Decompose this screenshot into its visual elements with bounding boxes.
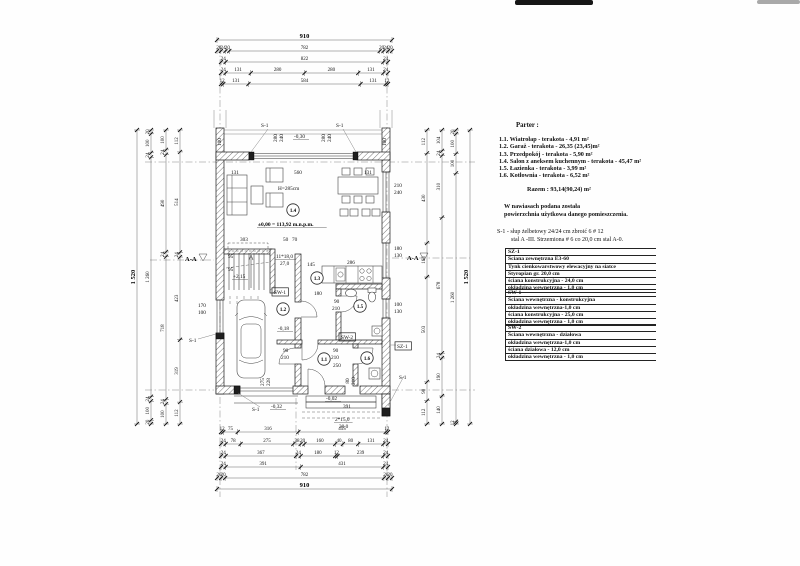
dim-label: 275 bbox=[263, 439, 271, 444]
dim-label: 24 bbox=[221, 462, 227, 467]
dim-label: 782 bbox=[301, 46, 309, 51]
s1-note-2: stal A -III. Strzemiona # 6 co 20,0 cm s… bbox=[511, 237, 623, 245]
room-list-item: 1.1. Wiatrołap - terakota - 4,91 m² bbox=[499, 136, 641, 143]
plan-label: 2*15,0 bbox=[335, 417, 350, 423]
plan-label: ±0,00 = 113,92 m.n.p.m. bbox=[258, 222, 314, 228]
wall-table-sw2: SW-2 Ściana wewnętrzna - działowa okładz… bbox=[505, 324, 656, 361]
dim-label: 131 bbox=[367, 68, 375, 73]
dim-label: 24 bbox=[221, 68, 227, 73]
plan-label: 100 bbox=[198, 310, 206, 316]
plan-label: 210 bbox=[332, 306, 340, 312]
dim-label: 75 bbox=[228, 427, 234, 432]
dim-label: 100 bbox=[146, 406, 151, 414]
dim-label: 1 520 bbox=[463, 270, 470, 285]
dim-label: 12 bbox=[220, 427, 226, 432]
dim-label: 24 bbox=[296, 451, 302, 456]
plan-label: 240 bbox=[279, 134, 285, 142]
plan-label: 131 bbox=[364, 170, 372, 176]
dim-label: 1 260 bbox=[146, 271, 151, 283]
plan-label: A-A bbox=[407, 255, 419, 262]
wall-table-sw1: SW-1 Ściana wewnętrzna - konstrukcyjna o… bbox=[505, 289, 656, 326]
wall-table-row: okładzina wewnętrzna-1,0 cm bbox=[506, 305, 656, 312]
plan-label: 130 bbox=[394, 309, 402, 315]
wall-table-row: Tynk cienkowarstwowy elewacyjny na siatc… bbox=[506, 264, 656, 271]
wall-table-row: ściana działowa - 12,0 cm bbox=[506, 347, 656, 354]
plan-label: -0,32 bbox=[271, 404, 282, 410]
note-line-1: W nawiasach podana została bbox=[504, 203, 580, 211]
dim-label: 24 bbox=[146, 396, 151, 402]
dim-label: 20 bbox=[388, 46, 394, 51]
plan-label: H=285cm bbox=[278, 186, 300, 192]
dim-label: 584 bbox=[301, 79, 309, 84]
dim-label: 490 bbox=[161, 199, 166, 207]
plan-label: 210 bbox=[351, 377, 357, 385]
wall-table-row: Ściana zewnętrzna E3-60 bbox=[506, 256, 656, 263]
dim-label: 20 bbox=[146, 419, 151, 425]
dim-label: 112 bbox=[175, 409, 180, 417]
dim-label: 319 bbox=[175, 367, 180, 375]
plan-label: +2,15 bbox=[233, 274, 246, 280]
plan-label: A-A bbox=[185, 256, 197, 263]
plan-label: 240 bbox=[394, 190, 402, 196]
dim-label: 24 bbox=[437, 150, 442, 156]
plan-label: 391 bbox=[343, 404, 351, 410]
plan-label: 210 bbox=[281, 355, 289, 361]
dim-label: 12 bbox=[384, 427, 390, 432]
room-number: 1.5 bbox=[357, 305, 364, 310]
dim-label: 12 bbox=[451, 420, 456, 426]
dim-label: 503 bbox=[422, 325, 427, 333]
plan-label: S-1 bbox=[189, 338, 197, 344]
room-list-item: 1.2. Garaż - terakota - 26,35 (23,45)m² bbox=[499, 143, 641, 150]
note-line-2: powierzchnia użytkowa danego pomieszczen… bbox=[504, 211, 628, 219]
dim-label: 280 bbox=[328, 68, 336, 73]
dim-label: 112 bbox=[422, 138, 427, 146]
dim-label: 140 bbox=[437, 406, 442, 414]
wall-table-row: okładzina wewnętrzna-1,0 cm bbox=[506, 340, 656, 347]
dim-label: 24 bbox=[221, 451, 227, 456]
dim-label: 180 bbox=[314, 451, 322, 456]
dim-label: 163 bbox=[422, 256, 427, 264]
plan-label: 303 bbox=[240, 237, 248, 243]
dim-label: 423 bbox=[175, 294, 180, 302]
dim-label: 20 bbox=[387, 473, 393, 478]
room-list: 1.1. Wiatrołap - terakota - 4,91 m² 1.2.… bbox=[499, 136, 641, 180]
dim-label: 239 bbox=[357, 451, 365, 456]
plan-label: 286 bbox=[347, 260, 355, 266]
plan-label: -0,30 bbox=[294, 134, 305, 140]
plan-label: 210 bbox=[394, 183, 402, 189]
dim-label: 12 bbox=[384, 79, 390, 84]
wall-table-sz1: SZ-1 Ściana zewnętrzna E3-60 Tynk cienko… bbox=[505, 248, 656, 293]
s1-note-1: S-1 - słup żelbetowy 24/24 cm zbroić 6 #… bbox=[497, 229, 603, 237]
porch-and-driveway bbox=[234, 394, 390, 418]
dim-label: 131 bbox=[234, 68, 242, 73]
plan-label: 90 bbox=[333, 348, 339, 354]
plan-label: 130 bbox=[394, 253, 402, 259]
plan-label: 50 bbox=[283, 237, 289, 243]
plan-label: S-1 bbox=[261, 123, 269, 129]
dim-label: 131 bbox=[369, 79, 377, 84]
dim-label: 718 bbox=[161, 324, 166, 332]
dim-label: 20 bbox=[451, 129, 456, 135]
dim-label: 24 bbox=[146, 152, 151, 158]
room-list-item: 1.6. Kotłownia - terakota - 6,52 m² bbox=[499, 172, 641, 179]
wall-table-row: ściana konstrukcyjna - 25,0 cm bbox=[506, 312, 656, 319]
plan-label: 180 bbox=[394, 246, 402, 252]
total-area: Razem : 93,14(90,24) m² bbox=[527, 186, 591, 194]
dim-label: 910 bbox=[300, 482, 310, 489]
plan-label: 70 bbox=[292, 237, 298, 243]
plan-label: 145 bbox=[307, 262, 315, 268]
dim-label: 24 bbox=[383, 462, 389, 467]
dim-label: 310 bbox=[437, 182, 442, 190]
dim-label: 678 bbox=[437, 281, 442, 289]
room-number: 1.3 bbox=[314, 277, 321, 282]
dim-label: 822 bbox=[301, 57, 309, 62]
dim-label: 20 bbox=[300, 439, 306, 444]
plan-label: 100 bbox=[217, 138, 223, 146]
plan-label: 11*18,0 bbox=[276, 254, 293, 260]
plan-label: SZ-1 bbox=[397, 344, 408, 350]
dim-label: 40 bbox=[337, 439, 343, 444]
plan-label: 180 bbox=[314, 291, 322, 297]
dim-label: 910 bbox=[300, 33, 310, 40]
plan-label: 30,0 bbox=[339, 424, 349, 430]
plan-label: SW-2 bbox=[341, 335, 353, 341]
plan-label: 250 bbox=[333, 363, 341, 369]
dim-label: 391 bbox=[259, 462, 267, 467]
plan-label: S-1 bbox=[399, 375, 407, 381]
floor-plan-drawing: 9102024207822024202482224241312802801312… bbox=[0, 0, 800, 566]
dim-label: 131 bbox=[232, 79, 240, 84]
plan-label: 131 bbox=[231, 170, 239, 176]
dim-label: 112 bbox=[175, 137, 180, 145]
dim-label: 80 bbox=[348, 439, 354, 444]
dim-label: 24 bbox=[383, 68, 389, 73]
plan-label: 100 bbox=[394, 302, 402, 308]
wall-table-row: ściana konstrukcyjna - 24,0 cm bbox=[506, 278, 656, 285]
dim-label: 24 bbox=[161, 251, 166, 257]
dim-label: 20 bbox=[221, 473, 227, 478]
structural-axes bbox=[145, 46, 475, 497]
dim-label: 100 bbox=[146, 139, 151, 147]
dim-label: 431 bbox=[338, 462, 346, 467]
dim-label: 100 bbox=[451, 159, 456, 167]
plan-label: S-1 bbox=[252, 407, 260, 413]
dim-label: 1 520 bbox=[130, 270, 137, 285]
room-number: 1.4 bbox=[290, 209, 297, 214]
plan-label: 228 bbox=[266, 378, 272, 386]
dim-label: 131 bbox=[367, 439, 375, 444]
plan-label: 170 bbox=[198, 303, 206, 309]
dim-label: 12 bbox=[220, 79, 226, 84]
dim-label: 24 bbox=[383, 57, 389, 62]
dim-label: 20 bbox=[146, 129, 151, 135]
wall-table-row: Ściana wewnętrzna - działowa bbox=[506, 332, 656, 339]
wall-table-row: Ściana wewnętrzna - konstrukcyjna bbox=[506, 297, 656, 304]
room-list-item: 1.4. Salon z aneksem kuchennym - terakot… bbox=[499, 158, 641, 165]
dim-label: 24 bbox=[161, 399, 166, 405]
room-number: 1.2 bbox=[280, 308, 287, 313]
plan-label: -0,02 bbox=[326, 396, 337, 402]
dim-label: 316 bbox=[264, 427, 272, 432]
plan-label: 240 bbox=[327, 134, 333, 142]
dim-label: 280 bbox=[274, 68, 282, 73]
plan-label: -0,18 bbox=[278, 326, 289, 332]
room-number: 1.1 bbox=[321, 358, 328, 363]
scanned-floor-plan-page: 9102024207822024202482224241312802801312… bbox=[0, 0, 800, 566]
plan-label: 27,0 bbox=[280, 261, 290, 267]
dim-label: 1 260 bbox=[451, 291, 456, 303]
dim-label: 12 bbox=[334, 451, 340, 456]
dim-label: 78 bbox=[231, 439, 237, 444]
dim-label: 100 bbox=[451, 140, 456, 148]
dim-label: 367 bbox=[257, 451, 265, 456]
dim-label: 24 bbox=[221, 439, 227, 444]
dim-label: 24 bbox=[383, 439, 389, 444]
dim-label: 24 bbox=[175, 252, 180, 258]
room-list-item: 1.5. Łazienka - terakota - 3,99 m² bbox=[499, 165, 641, 172]
plan-label: S-1 bbox=[336, 123, 344, 129]
plan-label: 90 bbox=[283, 348, 289, 354]
plan-label: SW-1 bbox=[274, 290, 286, 296]
room-list-item: 1.3. Przedpokój - terakota - 5,90 m² bbox=[499, 151, 641, 158]
plan-label: 100 bbox=[382, 138, 388, 146]
plan-label: 560 bbox=[294, 170, 302, 176]
dim-label: 24 bbox=[437, 353, 442, 359]
plan-label: 95 bbox=[228, 267, 234, 273]
dimension-chains: 9102024207822024202482224241312802801312… bbox=[130, 33, 473, 492]
legend-title: Parter : bbox=[516, 122, 539, 129]
plan-label: 90 bbox=[334, 299, 340, 305]
dim-label: 100 bbox=[161, 410, 166, 418]
wall-table-row: Styropian gr. 20,0 cm bbox=[506, 271, 656, 278]
plan-label: 210 bbox=[331, 355, 339, 361]
plan-label: 95 bbox=[228, 254, 234, 260]
dim-label: 24 bbox=[221, 57, 227, 62]
dim-label: 190 bbox=[437, 373, 442, 381]
dim-label: 100 bbox=[161, 136, 166, 144]
dim-label: 24 bbox=[161, 149, 166, 155]
dim-label: 112 bbox=[422, 408, 427, 416]
dim-label: 24 bbox=[383, 451, 389, 456]
dim-label: 90 bbox=[422, 388, 427, 394]
furniture bbox=[227, 168, 382, 379]
dim-label: 514 bbox=[175, 198, 180, 206]
dim-label: 430 bbox=[422, 194, 427, 202]
terrace-edge bbox=[214, 110, 392, 134]
dim-label: 160 bbox=[316, 439, 324, 444]
dim-label: 104 bbox=[437, 136, 442, 144]
dim-label: 20 bbox=[225, 46, 231, 51]
dim-label: 782 bbox=[301, 473, 309, 478]
room-number: 1.6 bbox=[364, 357, 371, 362]
wall-table-row: okładzina wewnętrzna - 1,0 cm bbox=[506, 354, 656, 361]
